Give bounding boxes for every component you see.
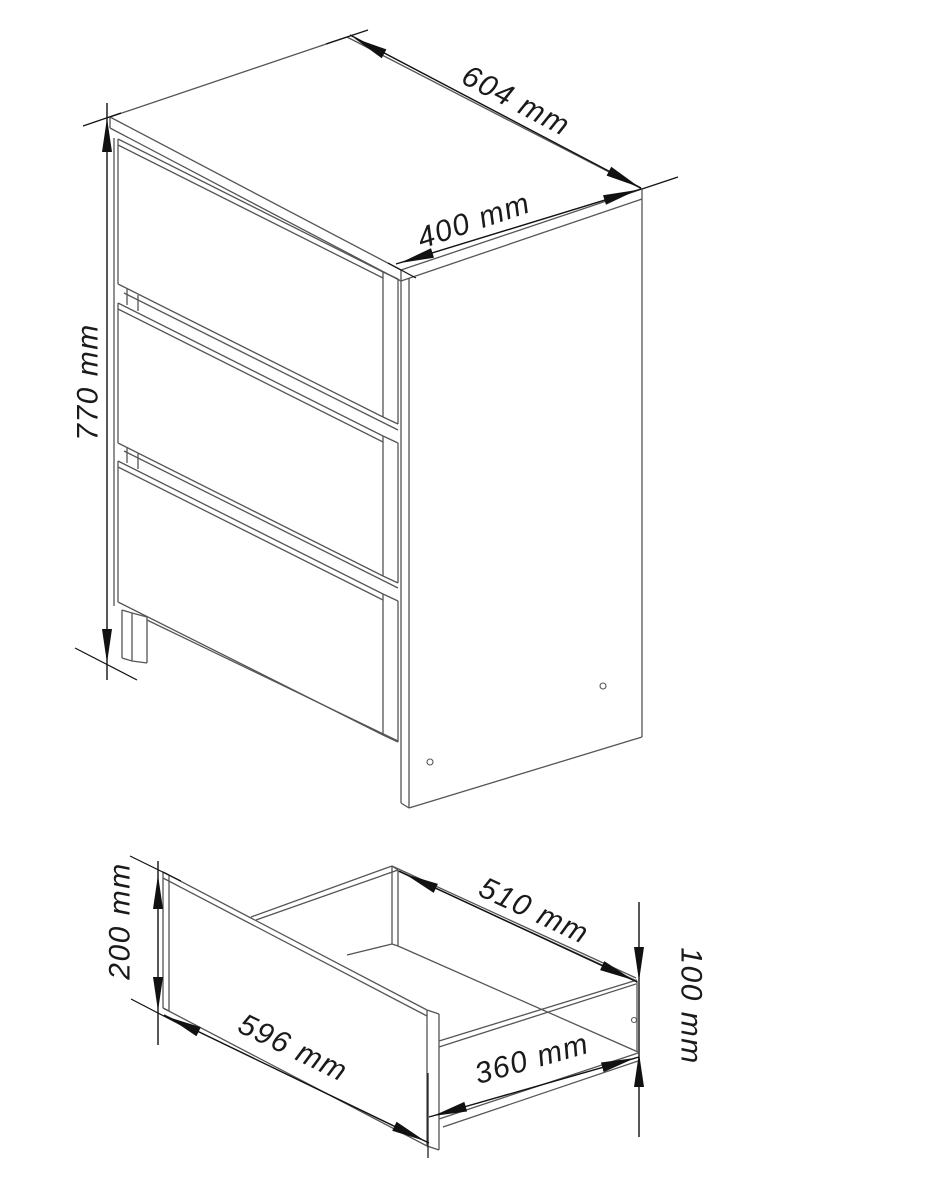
dimension-arrowhead [405,874,438,893]
dimension-arrowhead [634,947,644,981]
dimension-label-drawer-box-width: 510 mm [474,871,594,951]
hole-mark [632,1018,637,1023]
dimension-arrowhead [153,875,163,909]
dimension-drawer-front-width: 596 mm [164,1008,429,1158]
dimension-drawer-box-height: 100 mm [634,902,708,1137]
dimension-label-drawer-front-height: 200 mm [104,862,137,980]
cabinet-isometric-view [110,37,642,808]
dimension-cabinet-height: 770 mm [72,103,138,680]
dimension-drawer-box-width: 510 mm [399,871,637,982]
dimension-arrowhead [354,38,386,58]
drawing-canvas: 770 mm604 mm400 mm200 mm596 mm510 mm360 … [0,0,937,1200]
dimension-arrowhead [433,1102,467,1116]
dimension-arrowhead [392,1122,425,1141]
dimension-label-drawer-box-height: 100 mm [675,947,708,1064]
dimension-arrowhead [600,961,633,980]
dimension-cabinet-width: 604 mm [326,30,678,189]
dimension-label-cabinet-height: 770 mm [72,323,105,440]
dimension-arrowhead [102,629,112,663]
dimension-arrowhead [153,977,163,1011]
dimension-arrowhead [607,167,639,187]
dimension-annotations: 770 mm604 mm400 mm200 mm596 mm510 mm360 … [72,30,708,1158]
technical-drawing: 770 mm604 mm400 mm200 mm596 mm510 mm360 … [0,0,937,1200]
hole-mark [427,759,433,765]
dimension-drawer-front-height: 200 mm [104,856,184,1045]
dimension-label-drawer-box-depth: 360 mm [471,1027,593,1091]
hole-mark [600,683,606,689]
